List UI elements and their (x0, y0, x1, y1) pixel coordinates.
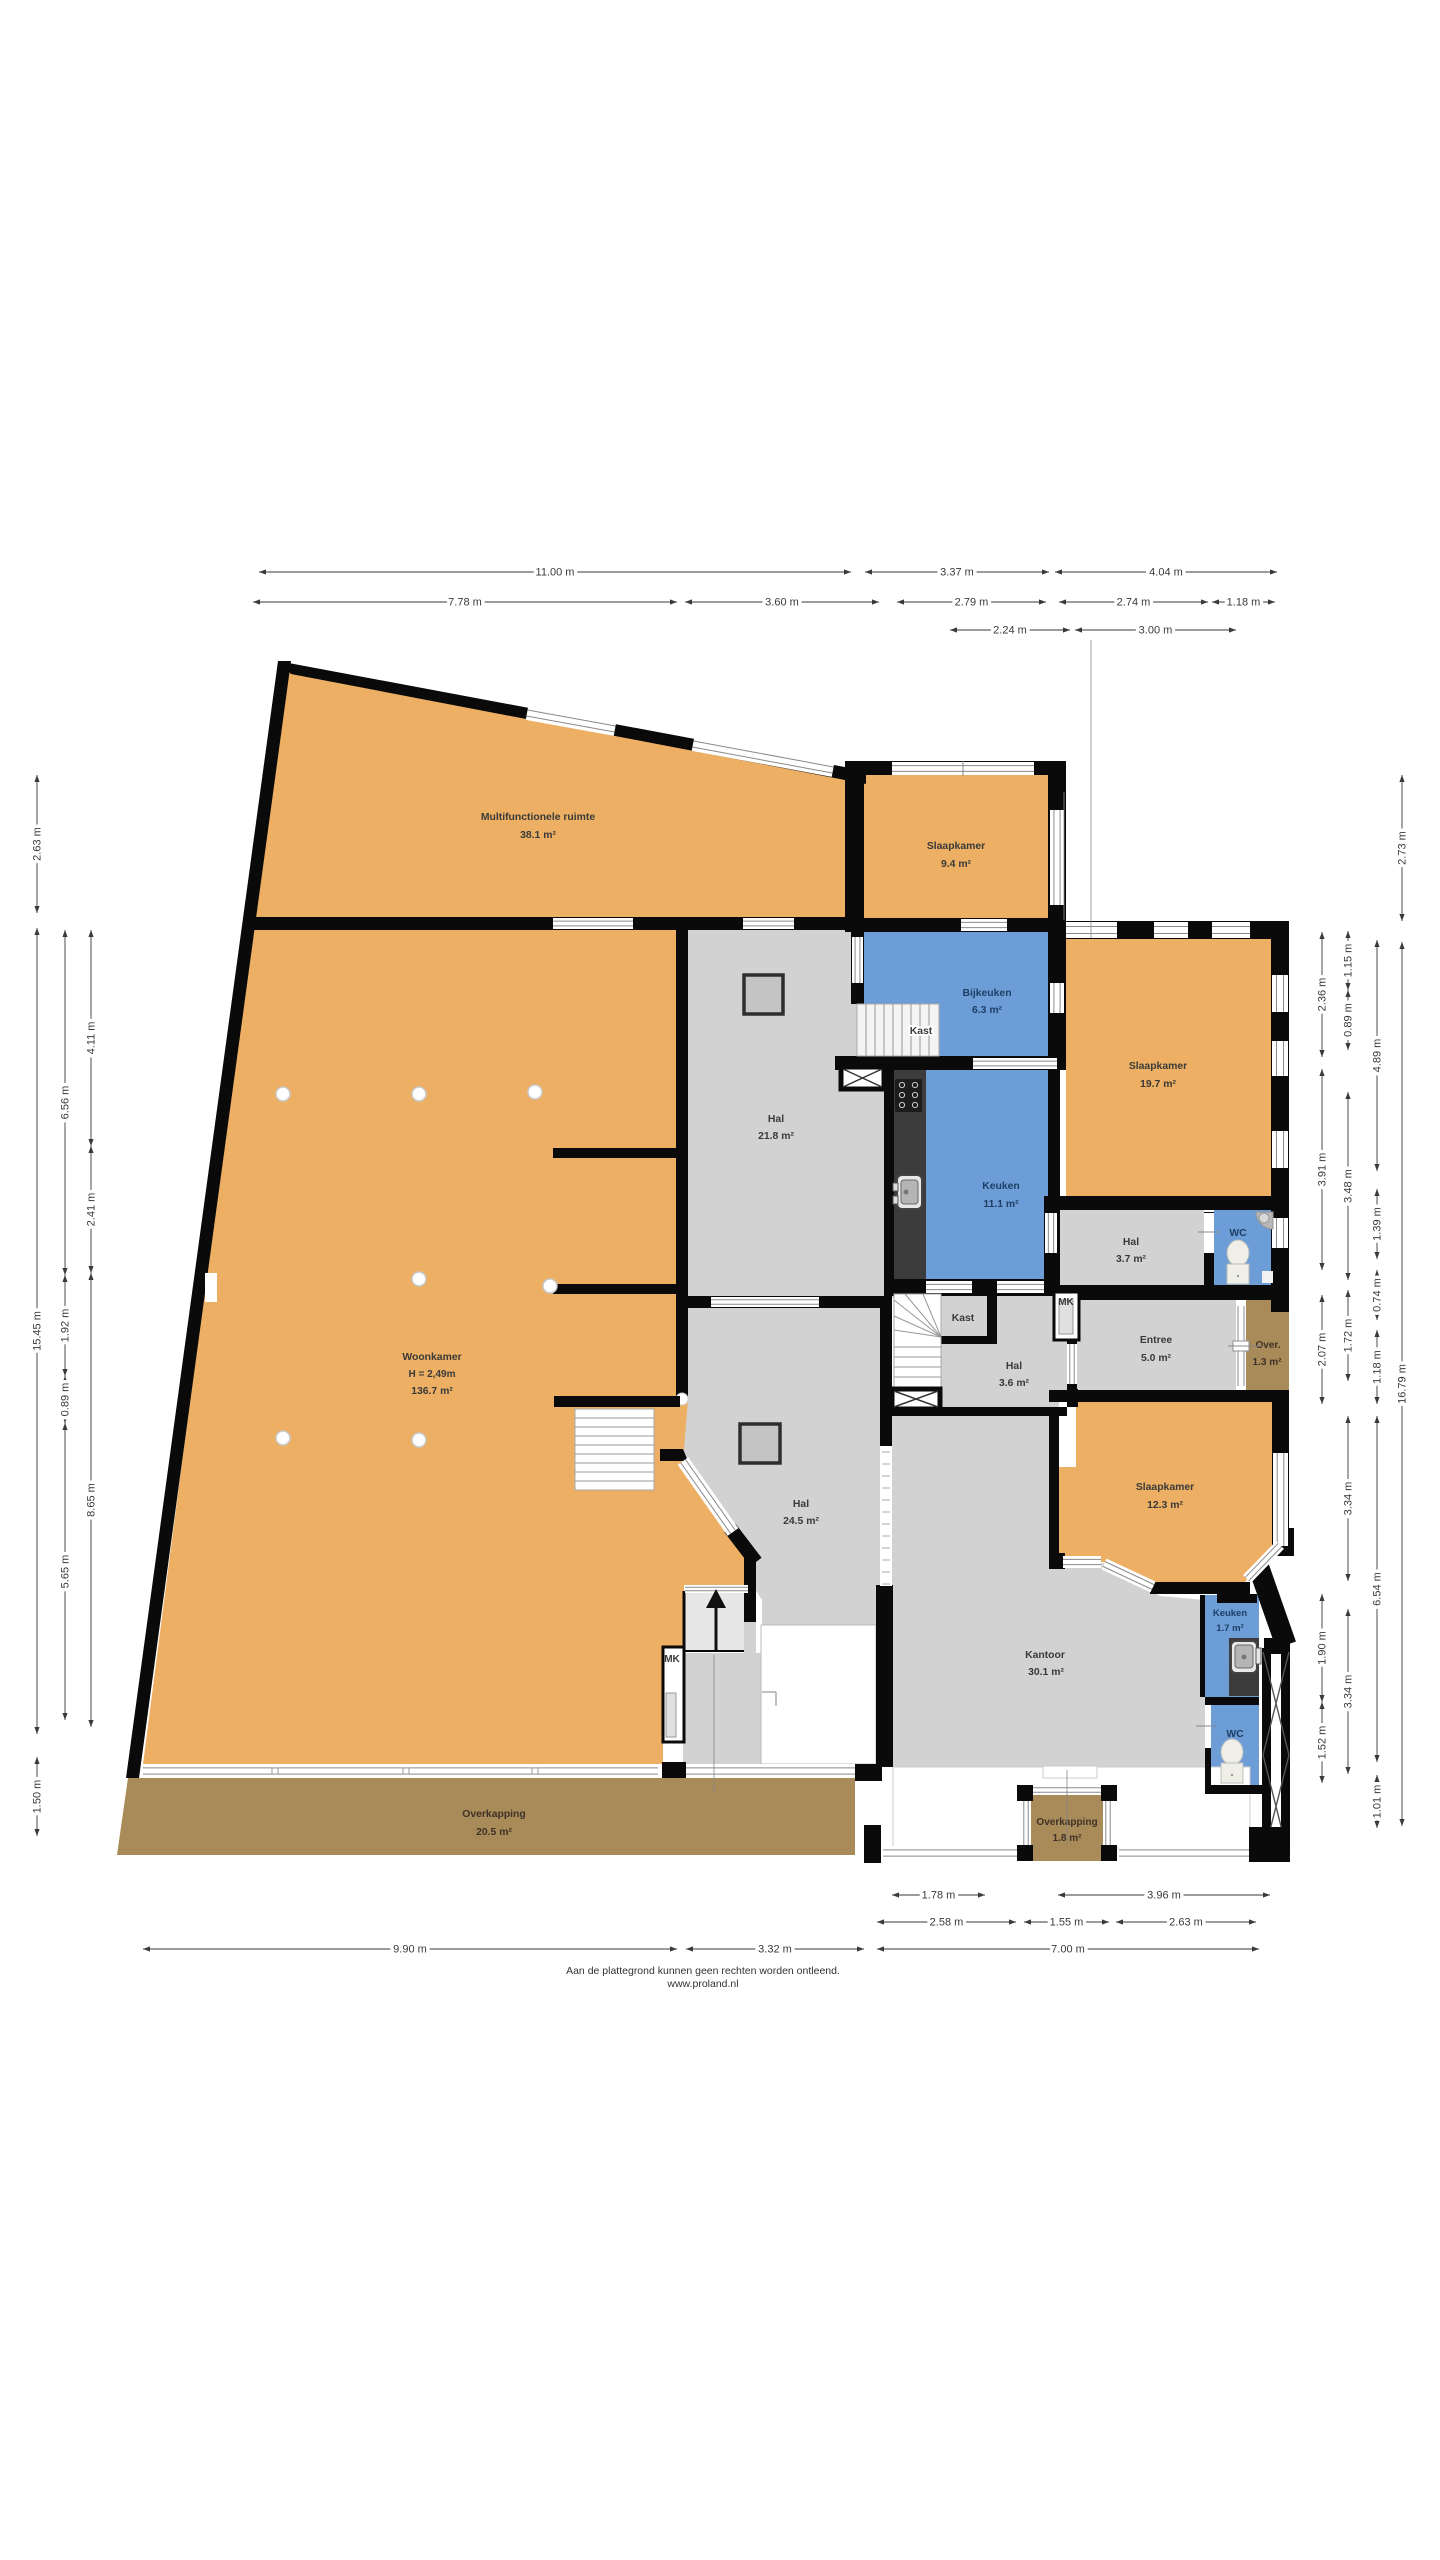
svg-text:Aan de plattegrond kunnen geen: Aan de plattegrond kunnen geen rechten w… (566, 1965, 840, 1977)
svg-text:Kantoor: Kantoor (1025, 1650, 1065, 1661)
svg-text:WC: WC (1229, 1228, 1247, 1239)
svg-text:24.5 m²: 24.5 m² (783, 1516, 819, 1527)
svg-text:2.63 m: 2.63 m (1169, 1917, 1203, 1929)
svg-text:2.79 m: 2.79 m (955, 597, 989, 609)
svg-text:2.07 m: 2.07 m (1317, 1333, 1329, 1367)
svg-text:7.78 m: 7.78 m (448, 597, 482, 609)
svg-text:16.79 m: 16.79 m (1397, 1364, 1409, 1404)
svg-text:WC: WC (1226, 1729, 1244, 1740)
svg-text:0.89 m: 0.89 m (1343, 1003, 1355, 1037)
svg-text:1.52 m: 1.52 m (1317, 1726, 1329, 1760)
svg-text:3.34 m: 3.34 m (1343, 1482, 1355, 1516)
svg-text:Slaapkamer: Slaapkamer (927, 841, 985, 852)
svg-text:20.5 m²: 20.5 m² (476, 1827, 512, 1838)
svg-text:Kast: Kast (910, 1026, 933, 1037)
svg-text:3.32 m: 3.32 m (758, 1944, 792, 1956)
svg-text:1.15 m: 1.15 m (1343, 944, 1355, 978)
svg-text:Hal: Hal (1006, 1361, 1022, 1372)
svg-text:2.24 m: 2.24 m (993, 625, 1027, 637)
svg-text:38.1 m²: 38.1 m² (520, 830, 556, 841)
svg-text:4.04 m: 4.04 m (1149, 567, 1183, 579)
svg-text:1.92 m: 1.92 m (60, 1309, 72, 1343)
svg-text:Multifunctionele ruimte: Multifunctionele ruimte (481, 812, 596, 823)
svg-text:11.1 m²: 11.1 m² (983, 1199, 1019, 1210)
svg-text:0.74 m: 0.74 m (1372, 1278, 1384, 1312)
svg-text:1.90 m: 1.90 m (1317, 1631, 1329, 1665)
svg-text:7.00 m: 7.00 m (1051, 1944, 1085, 1956)
svg-text:11.00 m: 11.00 m (536, 567, 575, 579)
svg-text:Keuken: Keuken (982, 1181, 1020, 1192)
svg-text:MK: MK (664, 1654, 680, 1665)
svg-text:1.72 m: 1.72 m (1343, 1319, 1355, 1353)
svg-text:6.56 m: 6.56 m (60, 1086, 72, 1120)
svg-text:3.34 m: 3.34 m (1343, 1675, 1355, 1709)
svg-text:1.18 m: 1.18 m (1372, 1350, 1384, 1384)
svg-text:0.89 m: 0.89 m (60, 1383, 72, 1417)
svg-text:21.8 m²: 21.8 m² (758, 1131, 794, 1142)
svg-text:12.3 m²: 12.3 m² (1147, 1500, 1183, 1511)
svg-text:Hal: Hal (768, 1114, 784, 1125)
svg-text:1.50 m: 1.50 m (32, 1780, 44, 1814)
svg-text:3.96 m: 3.96 m (1147, 1890, 1181, 1902)
svg-text:5.65 m: 5.65 m (60, 1555, 72, 1589)
svg-text:9.4 m²: 9.4 m² (941, 859, 972, 870)
svg-text:3.91 m: 3.91 m (1317, 1153, 1329, 1187)
svg-text:15.45 m: 15.45 m (32, 1311, 44, 1351)
svg-text:6.54 m: 6.54 m (1372, 1572, 1384, 1606)
svg-text:1.18 m: 1.18 m (1227, 597, 1261, 609)
svg-text:MK: MK (1058, 1297, 1074, 1308)
svg-text:1.55 m: 1.55 m (1050, 1917, 1084, 1929)
svg-text:Entree: Entree (1140, 1335, 1173, 1346)
svg-text:3.37 m: 3.37 m (940, 567, 974, 579)
svg-text:3.7 m²: 3.7 m² (1116, 1254, 1147, 1265)
svg-text:Keuken: Keuken (1213, 1608, 1248, 1619)
svg-text:9.90 m: 9.90 m (393, 1944, 427, 1956)
svg-text:Kast: Kast (952, 1313, 975, 1324)
svg-text:2.41 m: 2.41 m (86, 1193, 98, 1227)
svg-text:Hal: Hal (793, 1499, 809, 1510)
svg-text:1.7 m²: 1.7 m² (1216, 1623, 1243, 1634)
svg-text:H = 2,49m: H = 2,49m (409, 1369, 456, 1380)
svg-text:8.65 m: 8.65 m (86, 1483, 98, 1517)
svg-text:2.74 m: 2.74 m (1117, 597, 1151, 609)
svg-text:Slaapkamer: Slaapkamer (1136, 1482, 1194, 1493)
svg-text:Overkapping: Overkapping (462, 1809, 526, 1820)
svg-text:Hal: Hal (1123, 1237, 1139, 1248)
svg-text:3.00 m: 3.00 m (1139, 625, 1173, 637)
svg-text:2.63 m: 2.63 m (32, 827, 44, 861)
svg-text:Woonkamer: Woonkamer (402, 1352, 461, 1363)
svg-text:3.60 m: 3.60 m (765, 597, 799, 609)
svg-text:4.11 m: 4.11 m (86, 1022, 98, 1055)
svg-text:1.39 m: 1.39 m (1372, 1207, 1384, 1241)
svg-text:5.0 m²: 5.0 m² (1141, 1353, 1172, 1364)
svg-text:2.58 m: 2.58 m (930, 1917, 964, 1929)
svg-text:1.01 m: 1.01 m (1372, 1785, 1384, 1819)
svg-text:2.73 m: 2.73 m (1397, 831, 1409, 865)
svg-text:1.78 m: 1.78 m (922, 1890, 956, 1902)
svg-text:30.1 m²: 30.1 m² (1028, 1667, 1064, 1678)
svg-text:2.36 m: 2.36 m (1317, 978, 1329, 1012)
svg-text:4.89 m: 4.89 m (1372, 1039, 1384, 1073)
svg-text:Slaapkamer: Slaapkamer (1129, 1061, 1187, 1072)
svg-text:136.7 m²: 136.7 m² (411, 1386, 453, 1397)
svg-text:www.proland.nl: www.proland.nl (666, 1978, 738, 1990)
svg-text:3.48 m: 3.48 m (1343, 1169, 1355, 1203)
svg-text:3.6 m²: 3.6 m² (999, 1378, 1030, 1389)
svg-text:Bijkeuken: Bijkeuken (962, 988, 1011, 999)
svg-text:6.3 m²: 6.3 m² (972, 1005, 1003, 1016)
svg-text:1.3 m²: 1.3 m² (1253, 1357, 1283, 1368)
svg-text:19.7 m²: 19.7 m² (1140, 1079, 1176, 1090)
